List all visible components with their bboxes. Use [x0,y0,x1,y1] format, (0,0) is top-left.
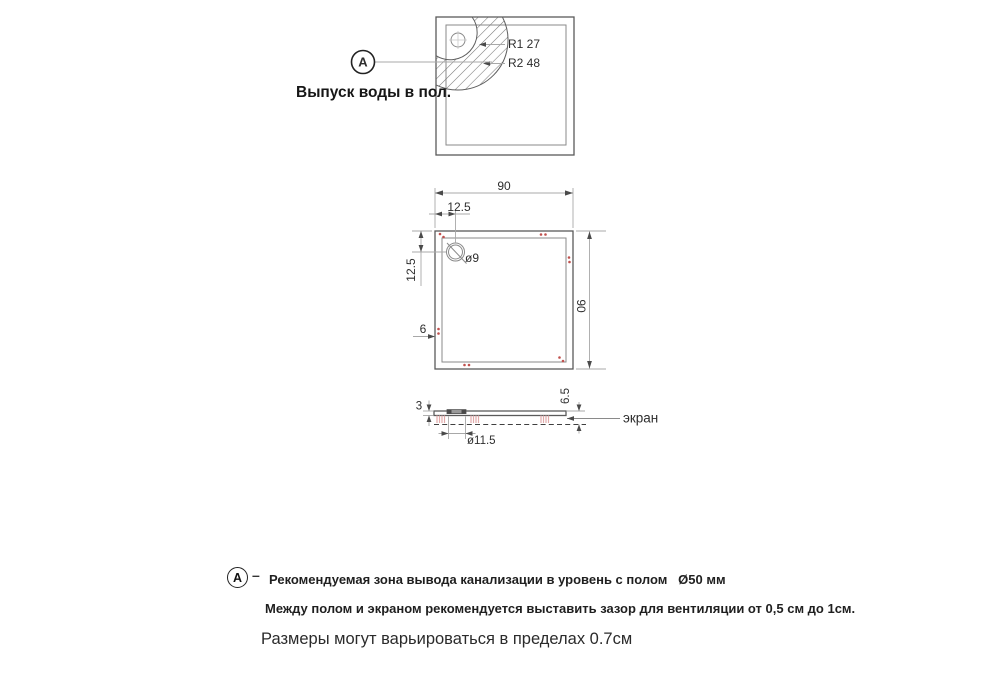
notes-callout-letter: A [233,571,242,585]
screen-label: экран [623,411,658,426]
side-dim-thickness-label: 3 [416,401,422,413]
plan-drain-icon [447,243,467,264]
plan-dim-width-label: 90 [497,179,511,193]
plan-dim-drain-y-label: 12.5 [404,258,418,282]
side-dim-flange-label: ø11.5 [467,435,496,447]
r1-label: R1 27 [508,37,540,51]
detail-callout-letter: A [358,55,368,70]
support-marks [437,416,549,424]
plan-dim-drain-x-label: 12.5 [447,200,471,214]
r2-label: R2 48 [508,56,540,70]
plan-dim-wall: 6 [413,322,435,339]
drain-diameter-label: ø9 [465,251,479,265]
plan-dim-wall-label: 6 [420,322,427,336]
note-line-2: Между полом и экраном рекомендуется выст… [265,601,855,616]
side-view: 3 6.5 ø11.5 [416,388,658,447]
red-marks [437,233,571,367]
drain-flange [447,410,466,414]
plan-dim-height-label: 90 [574,299,588,313]
notes-callout-circle: A [227,567,248,588]
detail-caption: Выпуск воды в пол. [296,84,451,102]
drawing-svg: R1 27 R2 48 A [0,0,1000,699]
plan-dim-height: 90 [574,231,606,369]
plan-dim-drain-y: 12.5 [404,231,446,286]
side-dim-thickness: 3 [416,401,433,427]
note-line-1: Рекомендуемая зона вывода канализации в … [269,572,726,587]
side-dim-flange: ø11.5 [439,417,496,448]
detail-drain-hole-icon [449,31,467,49]
notes-callout-dash: – [252,567,260,583]
screen-callout: экран [567,411,658,426]
plan-view: ø9 90 [404,179,606,369]
side-dim-edge-label: 6.5 [560,388,572,404]
technical-drawing-page: R1 27 R2 48 A [0,0,1000,699]
drain-zone-hatch [436,17,508,90]
note-line-3: Размеры могут варьироваться в пределах 0… [261,630,632,649]
